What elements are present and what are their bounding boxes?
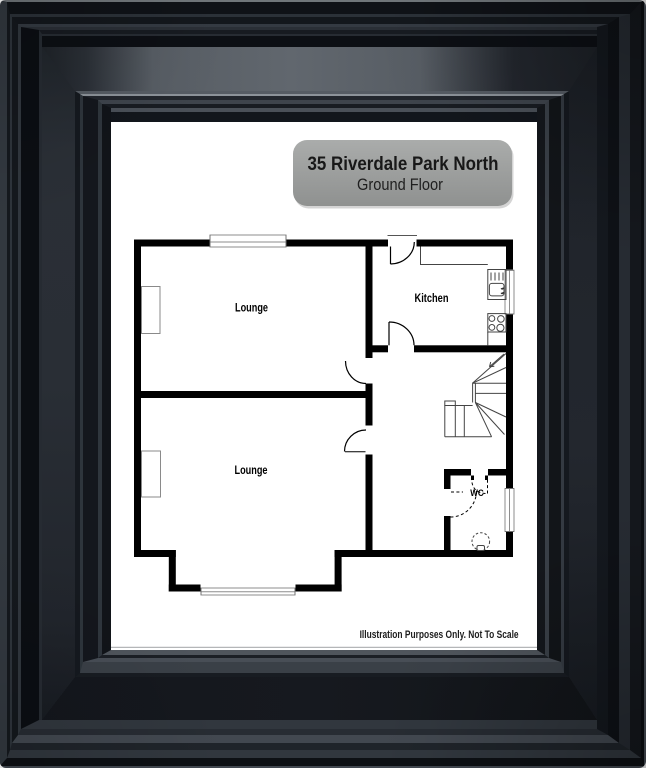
svg-text:Lounge: Lounge	[235, 303, 268, 315]
svg-text:Kitchen: Kitchen	[415, 293, 449, 305]
svg-text:35 Riverdale Park North: 35 Riverdale Park North	[308, 154, 499, 175]
svg-text:Lounge: Lounge	[235, 465, 268, 477]
svg-text:Ground Floor: Ground Floor	[357, 176, 443, 194]
svg-text:WC: WC	[470, 488, 484, 499]
svg-text:Illustration Purposes Only. No: Illustration Purposes Only. Not To Scale	[360, 629, 519, 641]
